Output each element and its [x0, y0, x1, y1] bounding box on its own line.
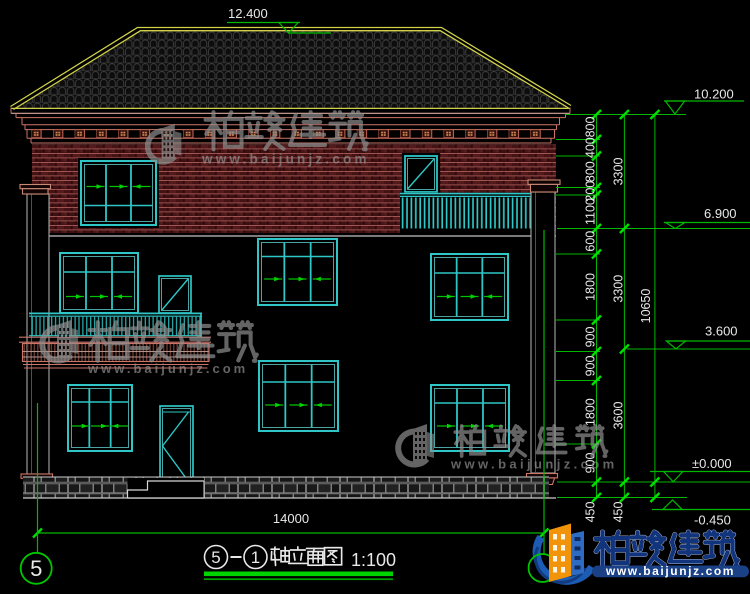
- svg-text:www.baijunjz.com: www.baijunjz.com: [201, 152, 370, 167]
- svg-text:1:100: 1:100: [351, 550, 396, 570]
- svg-text:600: 600: [584, 231, 598, 252]
- svg-text:1800: 1800: [584, 273, 598, 301]
- svg-text:450: 450: [612, 502, 626, 523]
- svg-text:450: 450: [584, 502, 598, 523]
- svg-text:3.600: 3.600: [705, 324, 738, 339]
- svg-text:14000: 14000: [273, 511, 309, 526]
- svg-text:800: 800: [584, 117, 598, 138]
- svg-text:www.baijunjz.com: www.baijunjz.com: [450, 457, 618, 472]
- svg-text:5: 5: [30, 556, 42, 581]
- svg-text:-0.450: -0.450: [694, 513, 731, 528]
- svg-text:1100: 1100: [584, 198, 598, 225]
- svg-text:1800: 1800: [584, 398, 598, 426]
- svg-text:400: 400: [584, 137, 598, 158]
- svg-text:900: 900: [584, 356, 598, 377]
- svg-text:www.baijunjz.com: www.baijunjz.com: [87, 361, 248, 376]
- svg-text:±0.000: ±0.000: [692, 456, 732, 471]
- svg-text:6.900: 6.900: [704, 206, 737, 221]
- svg-text:900: 900: [584, 327, 598, 348]
- svg-text:5: 5: [211, 548, 220, 567]
- svg-text:3600: 3600: [612, 402, 626, 430]
- svg-text:10.200: 10.200: [694, 87, 734, 102]
- svg-text:10650: 10650: [639, 289, 653, 324]
- svg-text:1: 1: [251, 548, 260, 567]
- svg-text:www.baijunjz.com: www.baijunjz.com: [605, 564, 735, 578]
- svg-text:800: 800: [584, 161, 598, 182]
- svg-text:12.400: 12.400: [228, 6, 268, 21]
- svg-text:3300: 3300: [612, 275, 626, 303]
- svg-text:3300: 3300: [612, 158, 626, 186]
